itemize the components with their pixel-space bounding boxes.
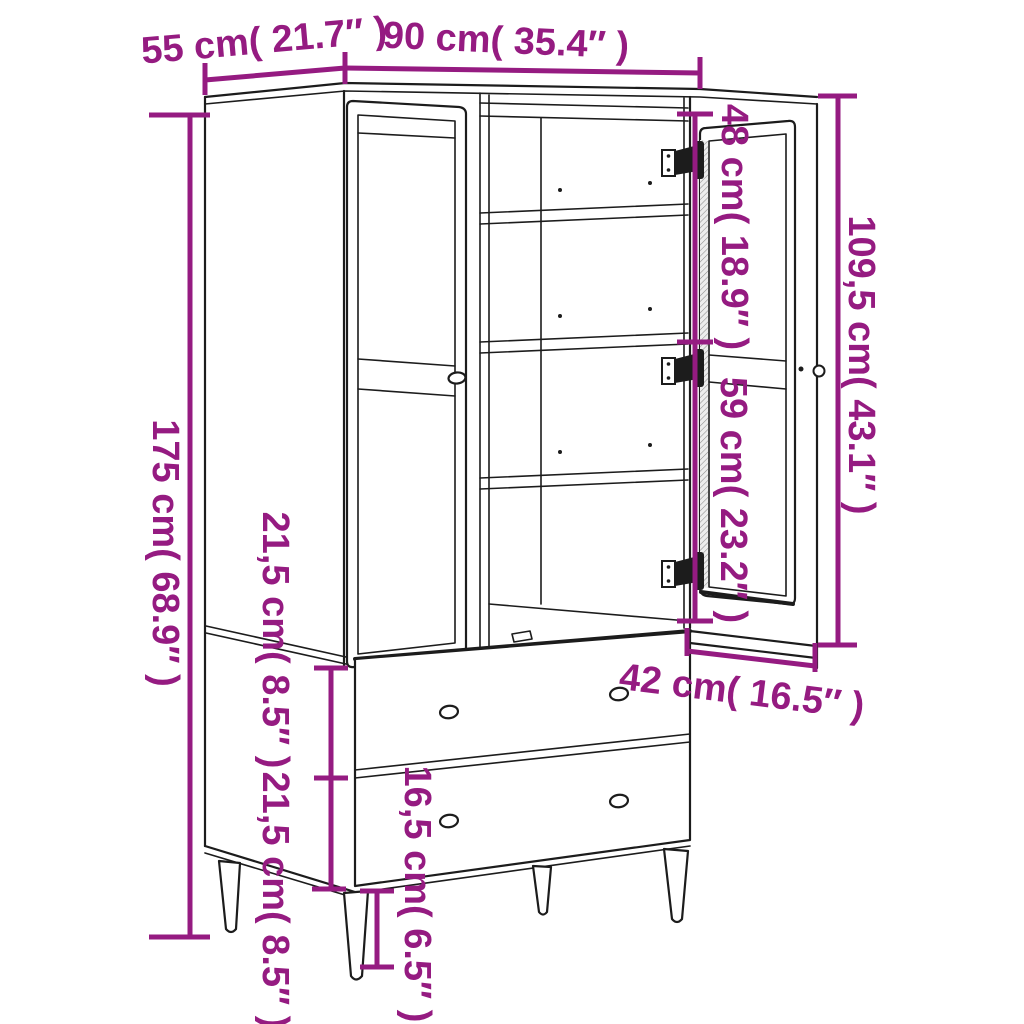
interior-ceiling <box>480 103 688 121</box>
dimension-label-door-height: 109,5 cm( 43.1″ ) <box>840 215 882 514</box>
dimension-upper-compartment: 48 cm( 18.9″ ) <box>677 104 755 350</box>
dimension-upper-drawer: 21,5 cm( 8.5″ ) <box>254 512 348 778</box>
interior-floor-back-edge <box>489 604 688 621</box>
dimension-line <box>312 778 346 889</box>
dimension-lower-drawer: 21,5 cm( 8.5″ ) <box>254 772 346 1024</box>
closed-door-panel <box>347 101 466 667</box>
shelf-2 <box>480 333 688 353</box>
cabinet-top-edge-inner <box>205 91 817 104</box>
dimension-width-top: 90 cm( 35.4″ ) <box>345 15 700 89</box>
dimension-label-width: 90 cm( 35.4″ ) <box>382 15 630 68</box>
dimension-door-height: 109,5 cm( 43.1″ ) <box>818 96 882 645</box>
door-catch-block <box>512 631 532 642</box>
dimension-label-upper-drawer: 21,5 cm( 8.5″ ) <box>254 512 296 769</box>
dimension-label-upper-compartment: 48 cm( 18.9″ ) <box>713 104 755 350</box>
shelf-3 <box>480 469 688 489</box>
door-knob <box>814 366 825 377</box>
door-hinge-middle <box>662 349 704 387</box>
leg-back-left <box>219 861 240 932</box>
dimension-label-lower-drawer: 21,5 cm( 8.5″ ) <box>254 772 296 1024</box>
shelf-1 <box>480 204 688 224</box>
closed-door <box>347 101 466 667</box>
dimension-label-lower-compartment: 59 cm( 23.2″ ) <box>712 377 754 623</box>
dimension-label-height: 175 cm( 68.9″ ) <box>144 419 186 686</box>
leg-back-right <box>533 866 551 915</box>
dimension-line <box>314 668 348 778</box>
dimension-overall-height: 175 cm( 68.9″ ) <box>144 115 210 937</box>
dimension-diagram: 55 cm( 21.7″ ) 90 cm( 35.4″ ) 175 cm( 68… <box>0 0 1024 1024</box>
opening-left-edge <box>480 93 489 658</box>
cabinet-interior <box>480 93 688 658</box>
door-hinge-bottom <box>662 552 704 590</box>
leg-front-right <box>664 849 688 922</box>
knob-screw-dot <box>799 367 804 372</box>
dimension-label-depth: 55 cm( 21.7″ ) <box>140 9 389 72</box>
dimension-label-leg-height: 16,5 cm( 6.5″ ) <box>396 766 438 1023</box>
closed-door-handle <box>448 372 466 385</box>
hinges <box>662 141 704 590</box>
door-hinge-top <box>662 141 704 179</box>
wardrobe-line-art: 55 cm( 21.7″ ) 90 cm( 35.4″ ) 175 cm( 68… <box>0 0 1024 1024</box>
shelf-pin-holes <box>558 181 652 454</box>
